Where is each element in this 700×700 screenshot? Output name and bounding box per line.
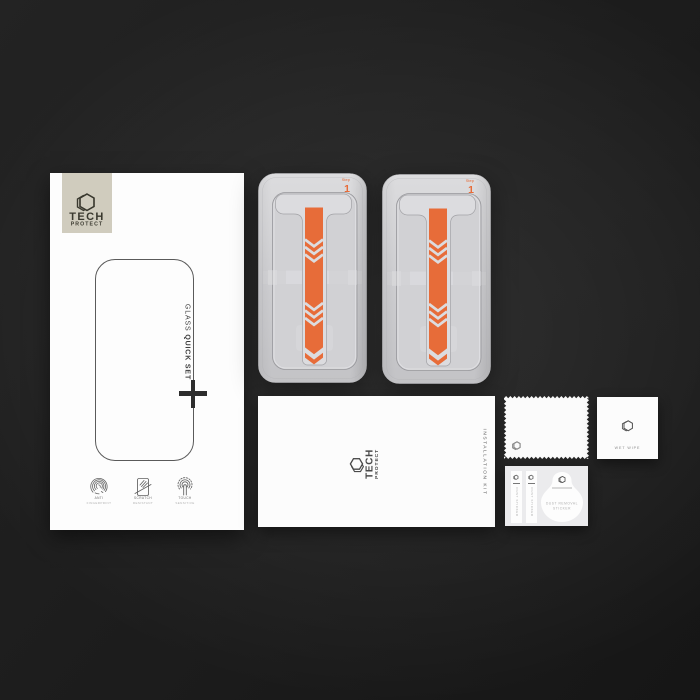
svg-text:Step: Step <box>342 177 351 182</box>
svg-text:PROTECT: PROTECT <box>374 449 380 479</box>
svg-text:1: 1 <box>344 183 350 195</box>
svg-text:1: 1 <box>468 184 474 196</box>
svg-text:DUST REMOVAL: DUST REMOVAL <box>546 502 578 506</box>
svg-text:PROTECT: PROTECT <box>71 222 104 228</box>
svg-text:STICKER: STICKER <box>553 507 571 511</box>
svg-text:Step: Step <box>466 178 475 183</box>
